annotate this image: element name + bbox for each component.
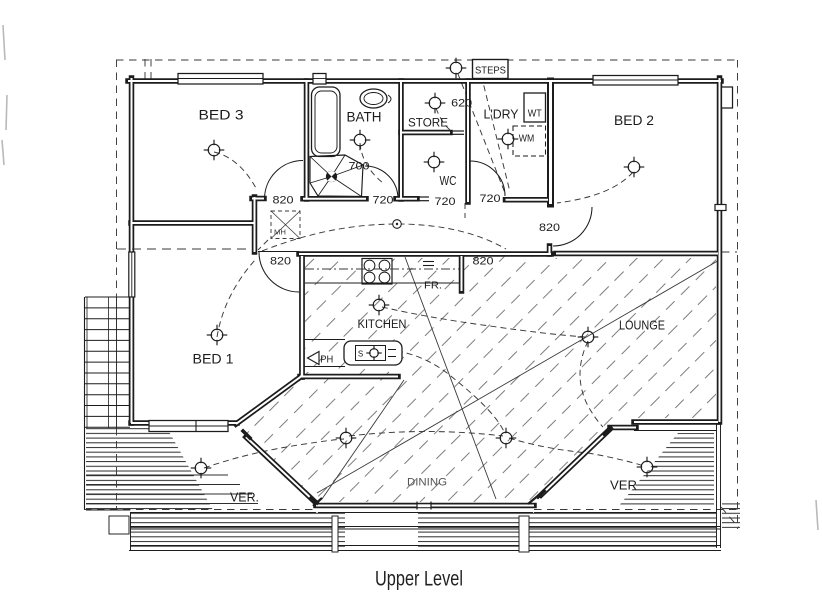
svg-text:720: 720 <box>480 193 501 205</box>
svg-text:KITCHEN: KITCHEN <box>358 319 407 331</box>
svg-text:MH: MH <box>274 228 286 237</box>
svg-text:VER: VER <box>610 478 637 493</box>
svg-text:FR.: FR. <box>424 280 442 292</box>
svg-text:VER.: VER. <box>230 490 259 505</box>
svg-text:STEPS: STEPS <box>475 66 506 77</box>
svg-text:WT: WT <box>528 109 542 120</box>
svg-text:820: 820 <box>273 195 294 207</box>
svg-text:720: 720 <box>373 195 394 207</box>
svg-text:820: 820 <box>539 222 560 234</box>
svg-text:LOUNGE: LOUNGE <box>619 319 665 333</box>
svg-text:S: S <box>358 350 363 359</box>
svg-text:BED 3: BED 3 <box>199 107 244 123</box>
svg-text:Upper Level: Upper Level <box>375 568 463 591</box>
svg-text:PH: PH <box>320 355 333 366</box>
svg-text:BED 2: BED 2 <box>614 113 654 128</box>
svg-text:BATH: BATH <box>347 110 382 125</box>
svg-text:STORE: STORE <box>408 118 448 130</box>
svg-text:DINING: DINING <box>407 477 447 489</box>
svg-text:820: 820 <box>473 256 494 268</box>
svg-text:820: 820 <box>270 256 291 268</box>
svg-text:WC: WC <box>440 174 457 188</box>
svg-text:620: 620 <box>451 98 472 110</box>
svg-text:L'DRY: L'DRY <box>484 107 519 122</box>
svg-text:WM: WM <box>519 134 535 145</box>
svg-text:700: 700 <box>349 161 370 173</box>
svg-text:720: 720 <box>435 196 456 208</box>
svg-text:BED 1: BED 1 <box>193 352 234 367</box>
